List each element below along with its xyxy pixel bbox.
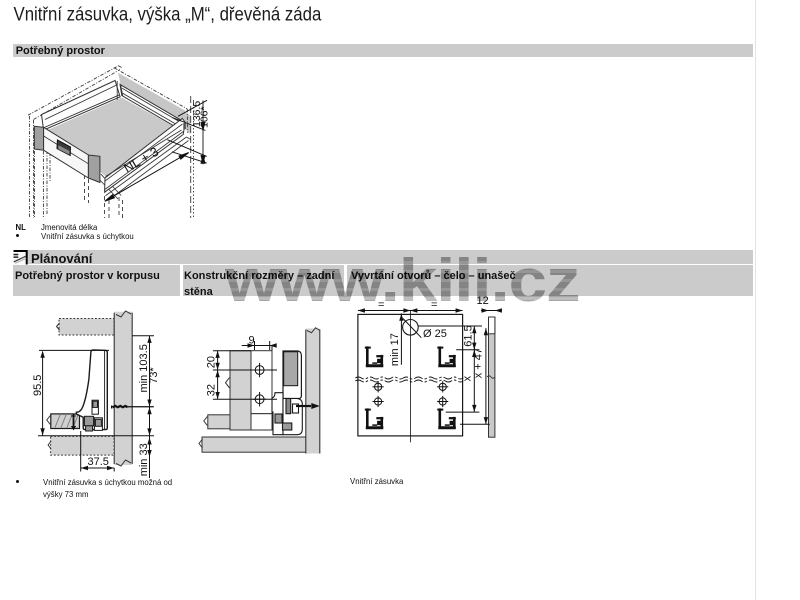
svg-text:x + 47: x + 47 (473, 348, 485, 378)
svg-text:9: 9 (249, 335, 255, 347)
svg-text:Ø 25: Ø 25 (423, 328, 447, 340)
svg-text:12: 12 (477, 295, 489, 307)
svg-text:20: 20 (206, 356, 218, 368)
svg-text:37.5: 37.5 (88, 456, 109, 468)
svg-text:106*: 106* (199, 106, 211, 128)
svg-text:min 33: min 33 (138, 443, 150, 476)
svg-text:=: = (378, 299, 384, 311)
svg-text:=: = (431, 299, 437, 311)
svg-text:61.5: 61.5 (462, 325, 474, 346)
svg-text:73*: 73* (148, 367, 160, 384)
svg-text:32: 32 (206, 384, 218, 396)
svg-text:95.5: 95.5 (32, 375, 44, 396)
svg-text:min 17: min 17 (389, 333, 401, 366)
